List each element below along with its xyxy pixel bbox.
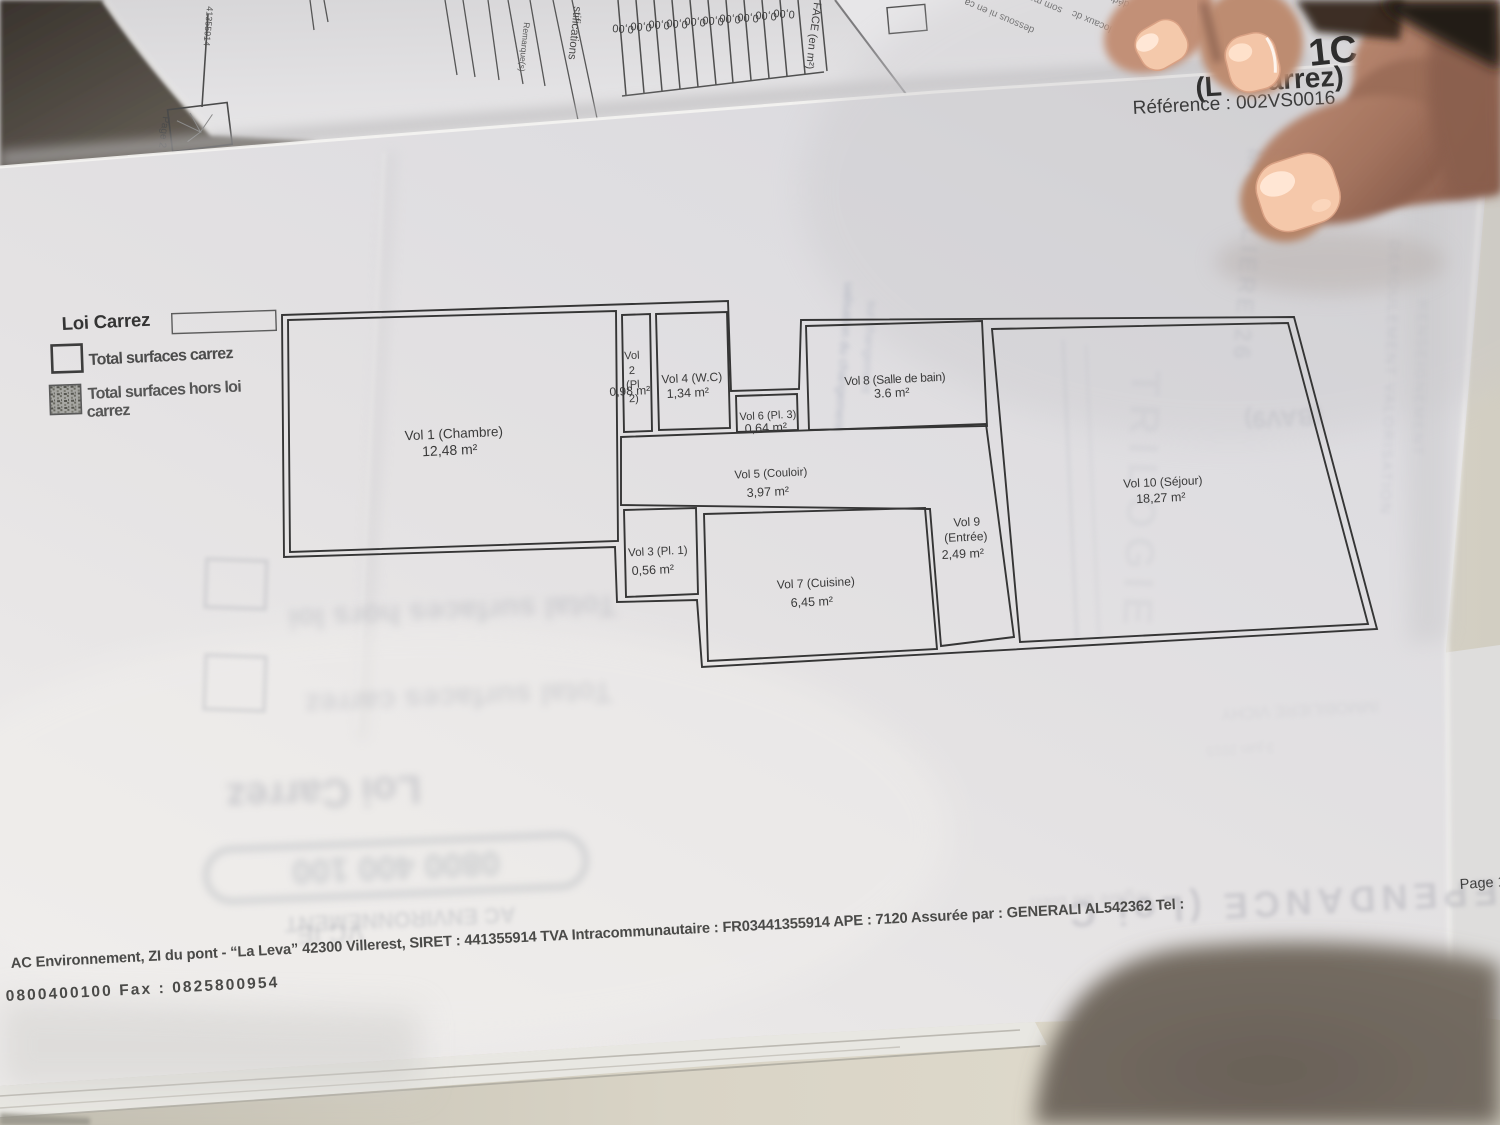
svg-text:0,56 m²: 0,56 m²	[631, 562, 674, 578]
svg-text:Vol 9: Vol 9	[953, 514, 981, 529]
svg-text:0,00: 0,00	[773, 7, 795, 20]
svg-text:Loi Carrez: Loi Carrez	[225, 767, 422, 819]
svg-text:12,48 m²: 12,48 m²	[422, 441, 478, 460]
svg-text:1,34 m²: 1,34 m²	[666, 385, 709, 401]
svg-text:(Entrée): (Entrée)	[944, 529, 988, 545]
svg-text:Vol 4 (W.C): Vol 4 (W.C)	[661, 370, 722, 387]
svg-text:0,98 m²: 0,98 m²	[609, 383, 650, 399]
svg-text:3,97 m²: 3,97 m²	[746, 484, 789, 500]
svg-text:2: 2	[629, 365, 636, 377]
svg-text:(BAV9): (BAV9)	[1244, 402, 1324, 433]
svg-text:Loi Carrez: Loi Carrez	[61, 309, 150, 334]
svg-text:6,45 m²: 6,45 m²	[790, 594, 833, 610]
svg-text:carrez: carrez	[86, 402, 130, 421]
svg-text:0,64 m²: 0,64 m²	[744, 420, 787, 436]
svg-text:18,27 m²: 18,27 m²	[1136, 490, 1186, 506]
svg-text:3.6 m²: 3.6 m²	[874, 385, 910, 401]
svg-text:2,49 m²: 2,49 m²	[941, 546, 984, 562]
svg-text:Vol: Vol	[624, 350, 640, 363]
svg-text:Page 1: Page 1	[1459, 874, 1500, 893]
